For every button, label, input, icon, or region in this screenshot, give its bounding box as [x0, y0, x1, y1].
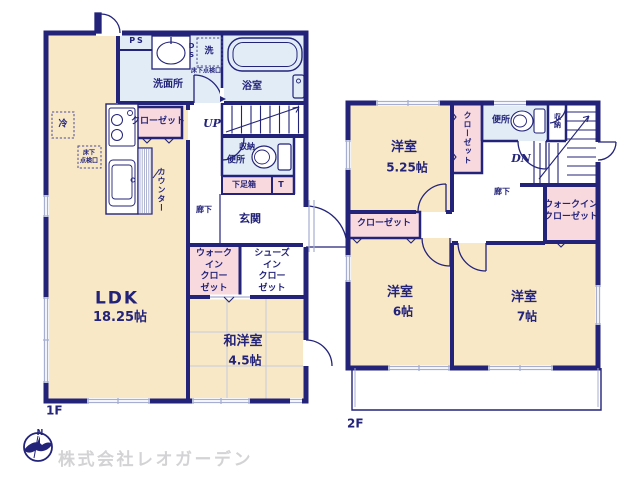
label-closet-v-2f: クローゼット: [463, 111, 471, 165]
label-sic: シューズ イン クロー ゼット: [254, 249, 290, 296]
label-yoshitsu1-size: 5.25帖: [386, 161, 428, 176]
bird-logo: [24, 442, 51, 452]
label-yoshitsu3-name: 洋室: [511, 290, 537, 306]
stairs-up-icon: [226, 106, 299, 134]
label-roka-2f: 廊下: [494, 187, 510, 197]
label-wayou-size: 4.5帖: [228, 354, 261, 369]
label-getabako: 下足箱: [232, 180, 256, 190]
label-yoshitsu3-size: 7帖: [517, 310, 537, 325]
floorplan-canvas: [0, 0, 640, 480]
label-ldk-size: 18.25帖: [93, 310, 147, 326]
label-washer: 洗: [204, 46, 213, 57]
floor2-room-fills: [348, 103, 598, 368]
label-wic-2f: ウォークイン クローゼット: [544, 199, 598, 223]
label-counter: カウンター: [157, 168, 165, 213]
label-shuno-1f: 収納: [239, 142, 255, 152]
label-closet-1f: クローゼット: [131, 116, 185, 127]
label-yoshitsu2-size: 6帖: [393, 305, 413, 320]
label-ps: PS: [129, 36, 145, 46]
label-floor1: 1F: [46, 404, 63, 419]
room-yoshitsu-525: [348, 103, 452, 212]
company-watermark: 株式会社レオガーデン: [58, 445, 253, 470]
label-tenkenko-ldk: 床下 点検口: [80, 150, 98, 165]
label-genkan: 玄関: [239, 212, 261, 226]
label-stairs-up: UP: [203, 117, 221, 131]
label-t: T: [278, 180, 283, 190]
floor2-plan: [345, 100, 616, 410]
label-shuno-2f: 収納: [554, 113, 561, 129]
label-closet-h-2f: クローゼット: [357, 218, 411, 229]
floorplan-page: PS DS 洗 洗面所 床下点検口 浴室 冷 床下 点検口 クローゼット UP …: [0, 0, 640, 480]
genkan-door-arc: [306, 206, 347, 247]
room-yoshitsu-6: [348, 238, 452, 368]
label-wayou-name: 和洋室: [223, 334, 262, 350]
label-stairs-dn: DN: [511, 152, 531, 166]
toilet-icon-2f: [511, 109, 545, 133]
washstand-icon: [152, 36, 190, 69]
label-compass-n: N: [37, 428, 44, 438]
label-fridge: 冷: [58, 119, 67, 130]
label-floor2: 2F: [347, 417, 364, 432]
label-ldk-name: LDK: [95, 288, 139, 309]
label-roka-1f: 廊下: [196, 205, 212, 215]
label-senmenjo: 洗面所: [153, 79, 183, 92]
toilet-icon-1f: [252, 144, 291, 170]
entry-door-leaf: [95, 13, 101, 33]
label-ds: DS: [188, 42, 195, 60]
label-tenkenko-wash: 床下点検口: [191, 67, 221, 75]
label-yoshitsu1-name: 洋室: [391, 140, 417, 156]
label-benjo-1f: 便所: [227, 155, 245, 166]
label-yoshitsu2-name: 洋室: [387, 285, 413, 301]
label-yokushitsu: 浴室: [242, 81, 262, 94]
balcony: [352, 368, 601, 410]
label-benjo-2f: 便所: [492, 115, 510, 126]
label-wic-1f: ウォーク イン クロー ゼット: [196, 249, 232, 296]
